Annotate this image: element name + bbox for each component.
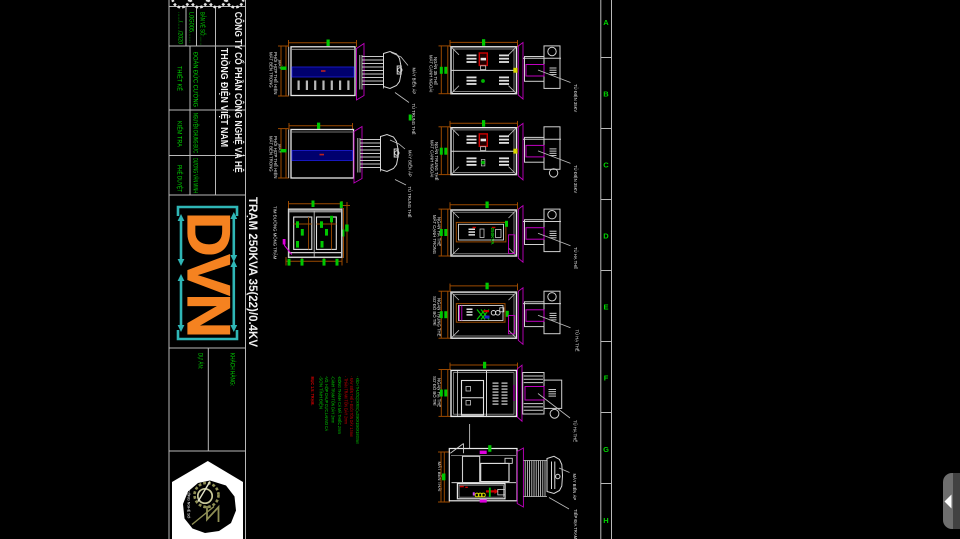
svg-text:MÁY BIẾN ÁP: MÁY BIẾN ÁP: [412, 68, 417, 95]
svg-text:TỦ ĐIỆN 35KV: TỦ ĐIỆN 35KV: [573, 84, 578, 112]
svg-text:H: H: [603, 516, 608, 525]
svg-text:MẮT BÊN TRONG: MẮT BÊN TRONG: [269, 136, 274, 172]
svg-text:TỦ HẠ THẾ: TỦ HẠ THẾ: [573, 420, 578, 442]
svg-text:TIM ĐƯỜNG MÓNG TRẬM: TIM ĐƯỜNG MÓNG TRẬM: [273, 206, 278, 260]
svg-text:L0G005.......: L0G005.......: [188, 12, 195, 43]
svg-text:- KÍCH THƯỜC(DXRXC)=2060X1060X: - KÍCH THƯỜC(DXRXC)=2060X1060X1900mm: [355, 376, 361, 444]
svg-text:THIẾT KẾ: THIẾT KẾ: [176, 66, 183, 91]
svg-text:TỦ TRUNG THẾ: TỦ TRUNG THẾ: [407, 187, 412, 218]
svg-text:ĐOÀN ĐỨC CƯỜNG: ĐOÀN ĐỨC CƯỜNG: [192, 52, 199, 107]
svg-text:MẮT CẠNH NGOÀI: MẮT CẠNH NGOÀI: [429, 55, 434, 92]
svg-text:F: F: [604, 374, 609, 383]
svg-text:C: C: [603, 161, 609, 170]
svg-text:SƠ ĐỒ BỐ TRÍ: SƠ ĐỒ BỐ TRÍ: [432, 376, 437, 406]
svg-text:D: D: [603, 232, 609, 241]
svg-text:DVN: DVN: [175, 212, 242, 336]
svg-text:SƠ ĐỒ BỐ TRÍ: SƠ ĐỒ BỐ TRÍ: [432, 296, 437, 326]
svg-text:MẮT BÊN TRONG: MẮT BÊN TRONG: [269, 52, 274, 88]
svg-text:MẮT CẠNH TRONG: MẮT CẠNH TRONG: [432, 215, 437, 255]
svg-text:TỦ HẠ THẾ: TỦ HẠ THẾ: [575, 330, 580, 352]
svg-text:MÁY BIẾN ÁP: MÁY BIẾN ÁP: [572, 474, 577, 501]
svg-text:TRẠM 250KVA 35(22)/0.4KV: TRẠM 250KVA 35(22)/0.4KV: [246, 197, 260, 348]
svg-text:CÔNG NGHỆ SỐ: CÔNG NGHỆ SỐ: [187, 490, 192, 519]
svg-text:- MÁY BIẾN THẾ + ĐUÔI TÔN DÀY: - MÁY BIẾN THẾ + ĐUÔI TÔN DÀY 1.5mm: [349, 376, 355, 437]
svg-text:DƯƠNG VĂN MINH: DƯƠNG VĂN MINH: [192, 158, 199, 193]
svg-text:NGUYỄN CHUNG ĐỨC: NGUYỄN CHUNG ĐỨC: [192, 113, 199, 153]
svg-text:-CÁNH TRẠM TÔN DÀY 2mm: -CÁNH TRẠM TÔN DÀY 2mm: [331, 376, 337, 423]
svg-text:CÔNG TY CỔ PHẦN CÔNG NGHỆ VÀ H: CÔNG TY CỔ PHẦN CÔNG NGHỆ VÀ HỆ: [232, 12, 245, 173]
svg-text:PHÊ DUYỆT: PHÊ DUYỆT: [176, 165, 184, 192]
svg-text:G: G: [603, 445, 609, 454]
svg-text:NGĂN 35 THẾ: NGĂN 35 THẾ: [433, 57, 438, 85]
svg-text:THỒNG ĐIỆN VIỆT NAM: THỒNG ĐIỆN VIỆT NAM: [218, 48, 231, 147]
svg-text:TỦ ĐIỆN 35KV: TỦ ĐIỆN 35KV: [573, 165, 578, 193]
svg-text:PHỐI HỢP THỂ HIỆN: PHỐI HỢP THỂ HIỆN: [273, 136, 278, 178]
svg-text:-SƠN TĨNH ĐIỆN: -SƠN TĨNH ĐIỆN: [319, 376, 326, 409]
svg-text:B: B: [603, 90, 609, 99]
svg-text:MẮT CẠNH NGOÀI: MẮT CẠNH NGOÀI: [430, 140, 435, 177]
svg-text:....../....../2020: ....../....../2020: [177, 12, 184, 44]
svg-text:MÁY BIẾN ÁP: MÁY BIẾN ÁP: [408, 150, 413, 177]
svg-text:KIỂM TRA: KIỂM TRA: [176, 121, 183, 148]
svg-text:DỰ ÁN:: DỰ ÁN:: [197, 353, 204, 369]
svg-text:- THÂN TRẠM TÔN DÀY 2mm: - THÂN TRẠM TÔN DÀY 2mm: [343, 376, 349, 424]
svg-text:MỤC 1.5: TRẠM.: MỤC 1.5: TRẠM.: [310, 377, 315, 406]
svg-text:BẢN VẼ SỐ:.......: BẢN VẼ SỐ:.......: [199, 12, 206, 45]
svg-text:TỦ HẠ THẾ: TỦ HẠ THẾ: [573, 247, 578, 269]
svg-text:A: A: [603, 18, 609, 27]
svg-text:-VỎ, HỘP CHỤP CỰC,LANVO CÁ: -VỎ, HỘP CHỤP CỰC,LANVO CÁ: [324, 376, 330, 431]
svg-text:E: E: [603, 303, 608, 312]
svg-text:NGĂN TRUNG THẾ: NGĂN TRUNG THẾ: [434, 142, 439, 181]
svg-text:KHÁCH HÀNG:: KHÁCH HÀNG:: [229, 353, 236, 386]
svg-text:-ĐÓNG THÀNH CÁ MÃ THIẾC 2mm: -ĐÓNG THÀNH CÁ MÃ THIẾC 2mm: [337, 376, 343, 434]
svg-text:TỦ TRUNG THẾ: TỦ TRUNG THẾ: [411, 104, 416, 135]
svg-text:TIẾP ĐỊA TRẠM: TIẾP ĐỊA TRẠM: [573, 509, 578, 539]
svg-text:PHỐI HỢP THỂ HIỆN: PHỐI HỢP THỂ HIỆN: [273, 52, 278, 94]
svg-text:250KVA: 250KVA: [490, 228, 495, 246]
